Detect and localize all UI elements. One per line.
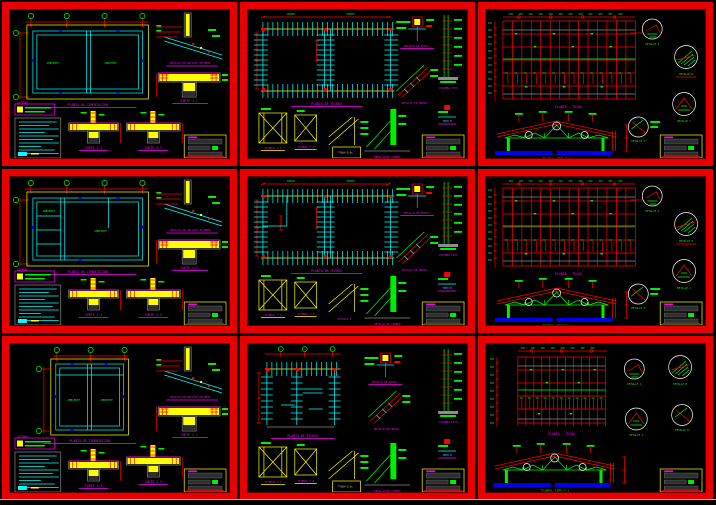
roof-structure-drawing-2: PLANTA DE TECHOS DETALLE DE APOYO COLUMN… [247,176,468,326]
braced-panel-1: TIJERAL T-1 [259,442,287,485]
panel2-caption: TIJERAL T-2 [297,479,314,483]
heel-detail: DETALLE 1 [329,451,369,488]
braced-panel-1: TIJERAL T-1 [259,275,287,318]
braced-panel-2: TIJERAL T-2 [295,444,317,484]
tip-detail: TIPO H [438,439,456,458]
foundation-plan: AMBIENTE AMBIENTE PLANTA DE CIMENTACION [43,359,137,444]
roof-plan-drawing-3: PLANTA - TECHO TIJERAL TIPO T-1 DETALLE … [485,343,706,493]
panel1-caption: TIJERAL T-1 [264,480,281,484]
support-detail: DETALLE DE APOYO [396,184,434,216]
room-label-1: AMBIENTE [43,209,56,213]
foundation-plan: AMBIENTE AMBIENTE PLANTA DE CIMENTACION [27,25,148,108]
specs-box [15,118,61,158]
heel-caption: DETALLE 1 [338,317,352,321]
sheet-roof-structure-3: PLANTA DE TECHOS DETALLE DE APOYO COLUMN… [240,336,475,500]
panel1-caption: TIJERAL T-1 [264,146,281,150]
detail-circle-c: DETALLE C [625,408,647,437]
braced-panel-1: TIJERAL T-1 [259,108,287,151]
column-ladder-detail: COLUMNA TIPO [438,349,462,424]
union-caption: DETALLE DE UNION [374,427,399,431]
grid-bubbles [13,13,148,99]
support-caption: DETALLE DE APOYO [404,44,429,48]
title-block [184,302,226,325]
section1-caption: CORTE 1-1 [181,433,198,437]
sheet-roof-plan-3: PLANTA - TECHO TIJERAL TIPO T-1 DETALLE … [478,336,713,500]
section1-caption: CORTE 1-1 [181,266,198,270]
tip-detail: TIPO H [438,105,456,124]
title-block [660,302,702,325]
page-bottom-line [0,499,716,500]
drawing-board: AMBIENTE AMBIENTE PLANTA DE CIMENTACION … [0,0,716,505]
title-block [184,469,226,492]
detail-circle-d: DETALLE D [628,117,660,143]
union-caption: DETALLE DE UNION [402,101,427,105]
column-ladder-detail: COLUMNA TIPO [438,15,462,90]
foundation-drawing-1: AMBIENTE AMBIENTE PLANTA DE CIMENTACION … [9,9,230,159]
foundation-drawing-3: AMBIENTE AMBIENTE PLANTA DE CIMENTACION … [9,343,230,493]
detail-a-caption: DETALLE A [645,42,659,46]
room-label-2: AMBIENTE [100,398,113,402]
column-caption: COLUMNA TIPO [439,253,458,257]
panel2-caption: TIJERAL T-2 [297,312,314,316]
plan-caption: PLANTA DE CIMENTACION [68,270,108,274]
roof-structure-drawing-1: PLANTA DE TECHOS DETALLE DE APOYO COLUMN… [247,9,468,159]
detail-d-caption: DETALLE D [675,428,689,432]
braced-panel-2: TIJERAL T-2 [295,277,317,317]
footing-section-2: CORTE 2-2 [69,111,121,151]
roof-grid-plan: PLANTA - TECHO [488,181,635,276]
sheet-foundation-2: AMBIENTE AMBIENTE PLANTA DE CIMENTACION … [2,169,237,333]
grid-bubbles [36,347,128,433]
wall-anchor-detail: DETALLE DE ANCLAJE EN MURO [156,347,222,400]
title-block [660,135,702,158]
room-label-1: AMBIENTE [47,61,60,65]
footing-section-1: CORTE 1-1 [156,407,228,438]
specs-box [15,452,61,492]
purlin-detail: DETALLE DE CORREA [364,276,410,326]
union-detail: DETALLE DE UNION [396,232,438,272]
detail-circle-d: DETALLE D [672,405,693,433]
roof-framing-plan: PLANTA DE TECHOS [254,181,398,274]
section2-caption: CORTE 2-2 [85,484,102,488]
member-caption: DETALLE DE CORREA [374,322,401,326]
legend-box: LEYENDA [15,434,55,449]
sheet-roof-plan-1: PLANTA - TECHO TIJERAL TIPO T-1 DETALLE … [478,2,713,166]
scale-caption: ESC 1/25 [340,151,353,155]
plan-caption: PLANTA DE TECHOS [287,434,318,438]
title-block [422,302,464,325]
tip-caption: TIPO H [442,286,452,290]
member-caption: DETALLE DE CORREA [374,489,401,493]
truss-elevation: TIJERAL TIPO T-1 [495,111,628,159]
union-caption: DETALLE DE UNION [402,268,427,272]
footing-section-2: CORTE 2-2 [69,278,121,318]
roof-framing-plan: PLANTA DE TECHOS [254,14,398,107]
column-ladder-detail: COLUMNA TIPO [438,182,462,257]
truss-elevation: TIJERAL TIPO T-1 [495,278,628,326]
tip-caption: TIPO H [442,453,452,457]
legend-box: LEYENDA [15,100,55,115]
sheet-roof-structure-1: PLANTA DE TECHOS DETALLE DE APOYO COLUMN… [240,2,475,166]
member-caption: DETALLE DE CORREA [374,155,401,159]
anchor-caption: DETALLE DE ANCLAJE EN MURO [170,228,211,232]
truss-caption: TIJERAL TIPO T-1 [540,488,569,492]
title-block [660,469,702,492]
detail-b-caption: DETALLE B [673,382,687,386]
wall-anchor-detail: DETALLE DE ANCLAJE EN MURO [156,13,222,66]
column-caption: COLUMNA TIPO [439,86,458,90]
footing-section-2: CORTE 2-2 [69,449,121,489]
support-caption: DETALLE DE APOYO [404,211,429,215]
truss-caption: TIJERAL TIPO T-1 [542,156,571,159]
foundation-plan: AMBIENTE AMBIENTE PLANTA DE CIMENTACION [27,192,148,275]
support-caption: DETALLE DE APOYO [372,380,397,384]
union-detail: DETALLE DE UNION [396,65,438,105]
sheet-grid: AMBIENTE AMBIENTE PLANTA DE CIMENTACION … [2,2,713,500]
title-block [422,135,464,158]
roof-plan-drawing-1: PLANTA - TECHO TIJERAL TIPO T-1 DETALLE … [485,9,706,159]
column-caption: COLUMNA TIPO [439,420,458,424]
plan-caption: PLANTA - TECHO [555,105,582,109]
detail-b-caption: DETALLE B [679,239,693,243]
heel-detail: DETALLE 1 [329,117,369,154]
panel2-caption: TIJERAL T-2 [297,145,314,149]
section1-caption: CORTE 1-1 [181,99,198,103]
truss-caption: TIJERAL TIPO T-1 [542,323,571,326]
title-block [422,469,464,492]
union-detail: DETALLE DE UNION [368,391,410,431]
plan-caption: PLANTA DE CIMENTACION [68,103,108,107]
tip-detail: TIPO H [438,272,456,291]
roof-structure-drawing-3: PLANTA DE TECHOS DETALLE DE APOYO COLUMN… [247,343,468,493]
heel-detail: DETALLE 1 [329,284,369,321]
section2-caption: CORTE 2-2 [85,146,102,150]
detail-circle-c: DETALLE C [673,93,696,124]
footing-section-1: CORTE 1-1 [156,240,228,271]
sheet-roof-plan-2: PLANTA - TECHO TIJERAL TIPO T-1 DETALLE … [478,169,713,333]
plan-caption: PLANTA - TECHO [555,272,582,276]
detail-circle-d: DETALLE D [628,284,660,310]
title-block [184,135,226,158]
plan-caption: PLANTA DE CIMENTACION [70,439,110,443]
grid-bubbles [13,180,148,266]
footing-section-3: CORTE 3-3 [126,445,182,485]
detail-b-caption: DETALLE B [679,72,693,76]
wall-anchor-detail: DETALLE DE ANCLAJE EN MURO [156,180,222,233]
detail-d-caption: DETALLE D [631,139,645,143]
section3-caption: CORTE 3-3 [145,146,162,150]
detail-a-caption: DETALLE A [645,209,659,213]
section3-caption: CORTE 3-3 [145,313,162,317]
legend-box: LEYENDA [15,267,55,282]
section2-caption: CORTE 2-2 [85,313,102,317]
room-label-2: AMBIENTE [94,229,107,233]
room-label-1: AMBIENTE [68,398,81,402]
roof-framing-plan: PLANTA DE TECHOS [257,347,341,439]
sheet-foundation-3: AMBIENTE AMBIENTE PLANTA DE CIMENTACION … [2,336,237,500]
detail-c-caption: DETALLE C [677,286,691,290]
detail-circle-a: DETALLE A [624,359,644,386]
plan-caption: PLANTA - TECHO [548,432,575,436]
anchor-caption: DETALLE DE ANCLAJE EN MURO [170,61,211,65]
purlin-detail: DETALLE DE CORREA [364,109,410,159]
panel1-caption: TIJERAL T-1 [264,313,281,317]
roof-grid-plan: PLANTA - TECHO [490,348,607,436]
scale-caption: ESC 1/25 [340,485,353,489]
tip-caption: TIPO H [442,119,452,123]
footing-section-3: CORTE 3-3 [126,111,182,151]
detail-c-caption: DETALLE C [677,119,691,123]
purlin-detail: DETALLE DE CORREA [364,443,410,493]
plan-caption: PLANTA DE TECHOS [311,269,342,273]
support-detail: DETALLE DE APOYO [364,353,402,385]
truss-elevation: TIJERAL TIPO T-1 [493,443,626,493]
anchor-caption: DETALLE DE ANCLAJE EN MURO [170,395,211,399]
detail-circle-b: DETALLE B [675,213,698,245]
section3-caption: CORTE 3-3 [145,480,162,484]
detail-a-caption: DETALLE A [627,382,641,386]
plan-caption: PLANTA DE TECHOS [311,102,342,106]
detail-d-caption: DETALLE D [631,306,645,310]
room-label-2: AMBIENTE [104,61,117,65]
specs-box [15,285,61,325]
foundation-drawing-2: AMBIENTE AMBIENTE PLANTA DE CIMENTACION … [9,176,230,326]
sheet-roof-structure-2: PLANTA DE TECHOS DETALLE DE APOYO COLUMN… [240,169,475,333]
detail-circle-c: DETALLE C [673,260,696,291]
braced-panel-2: TIJERAL T-2 [295,110,317,150]
sheet-foundation-1: AMBIENTE AMBIENTE PLANTA DE CIMENTACION … [2,2,237,166]
roof-grid-plan: PLANTA - TECHO [488,14,635,109]
detail-c-caption: DETALLE C [629,433,643,437]
detail-circle-b: DETALLE B [675,46,698,78]
detail-circle-b: DETALLE B [669,356,692,387]
footing-section-1: CORTE 1-1 [156,73,228,104]
roof-plan-drawing-2: PLANTA - TECHO TIJERAL TIPO T-1 DETALLE … [485,176,706,326]
footing-section-3: CORTE 3-3 [126,278,182,318]
support-detail: DETALLE DE APOYO [396,17,434,49]
